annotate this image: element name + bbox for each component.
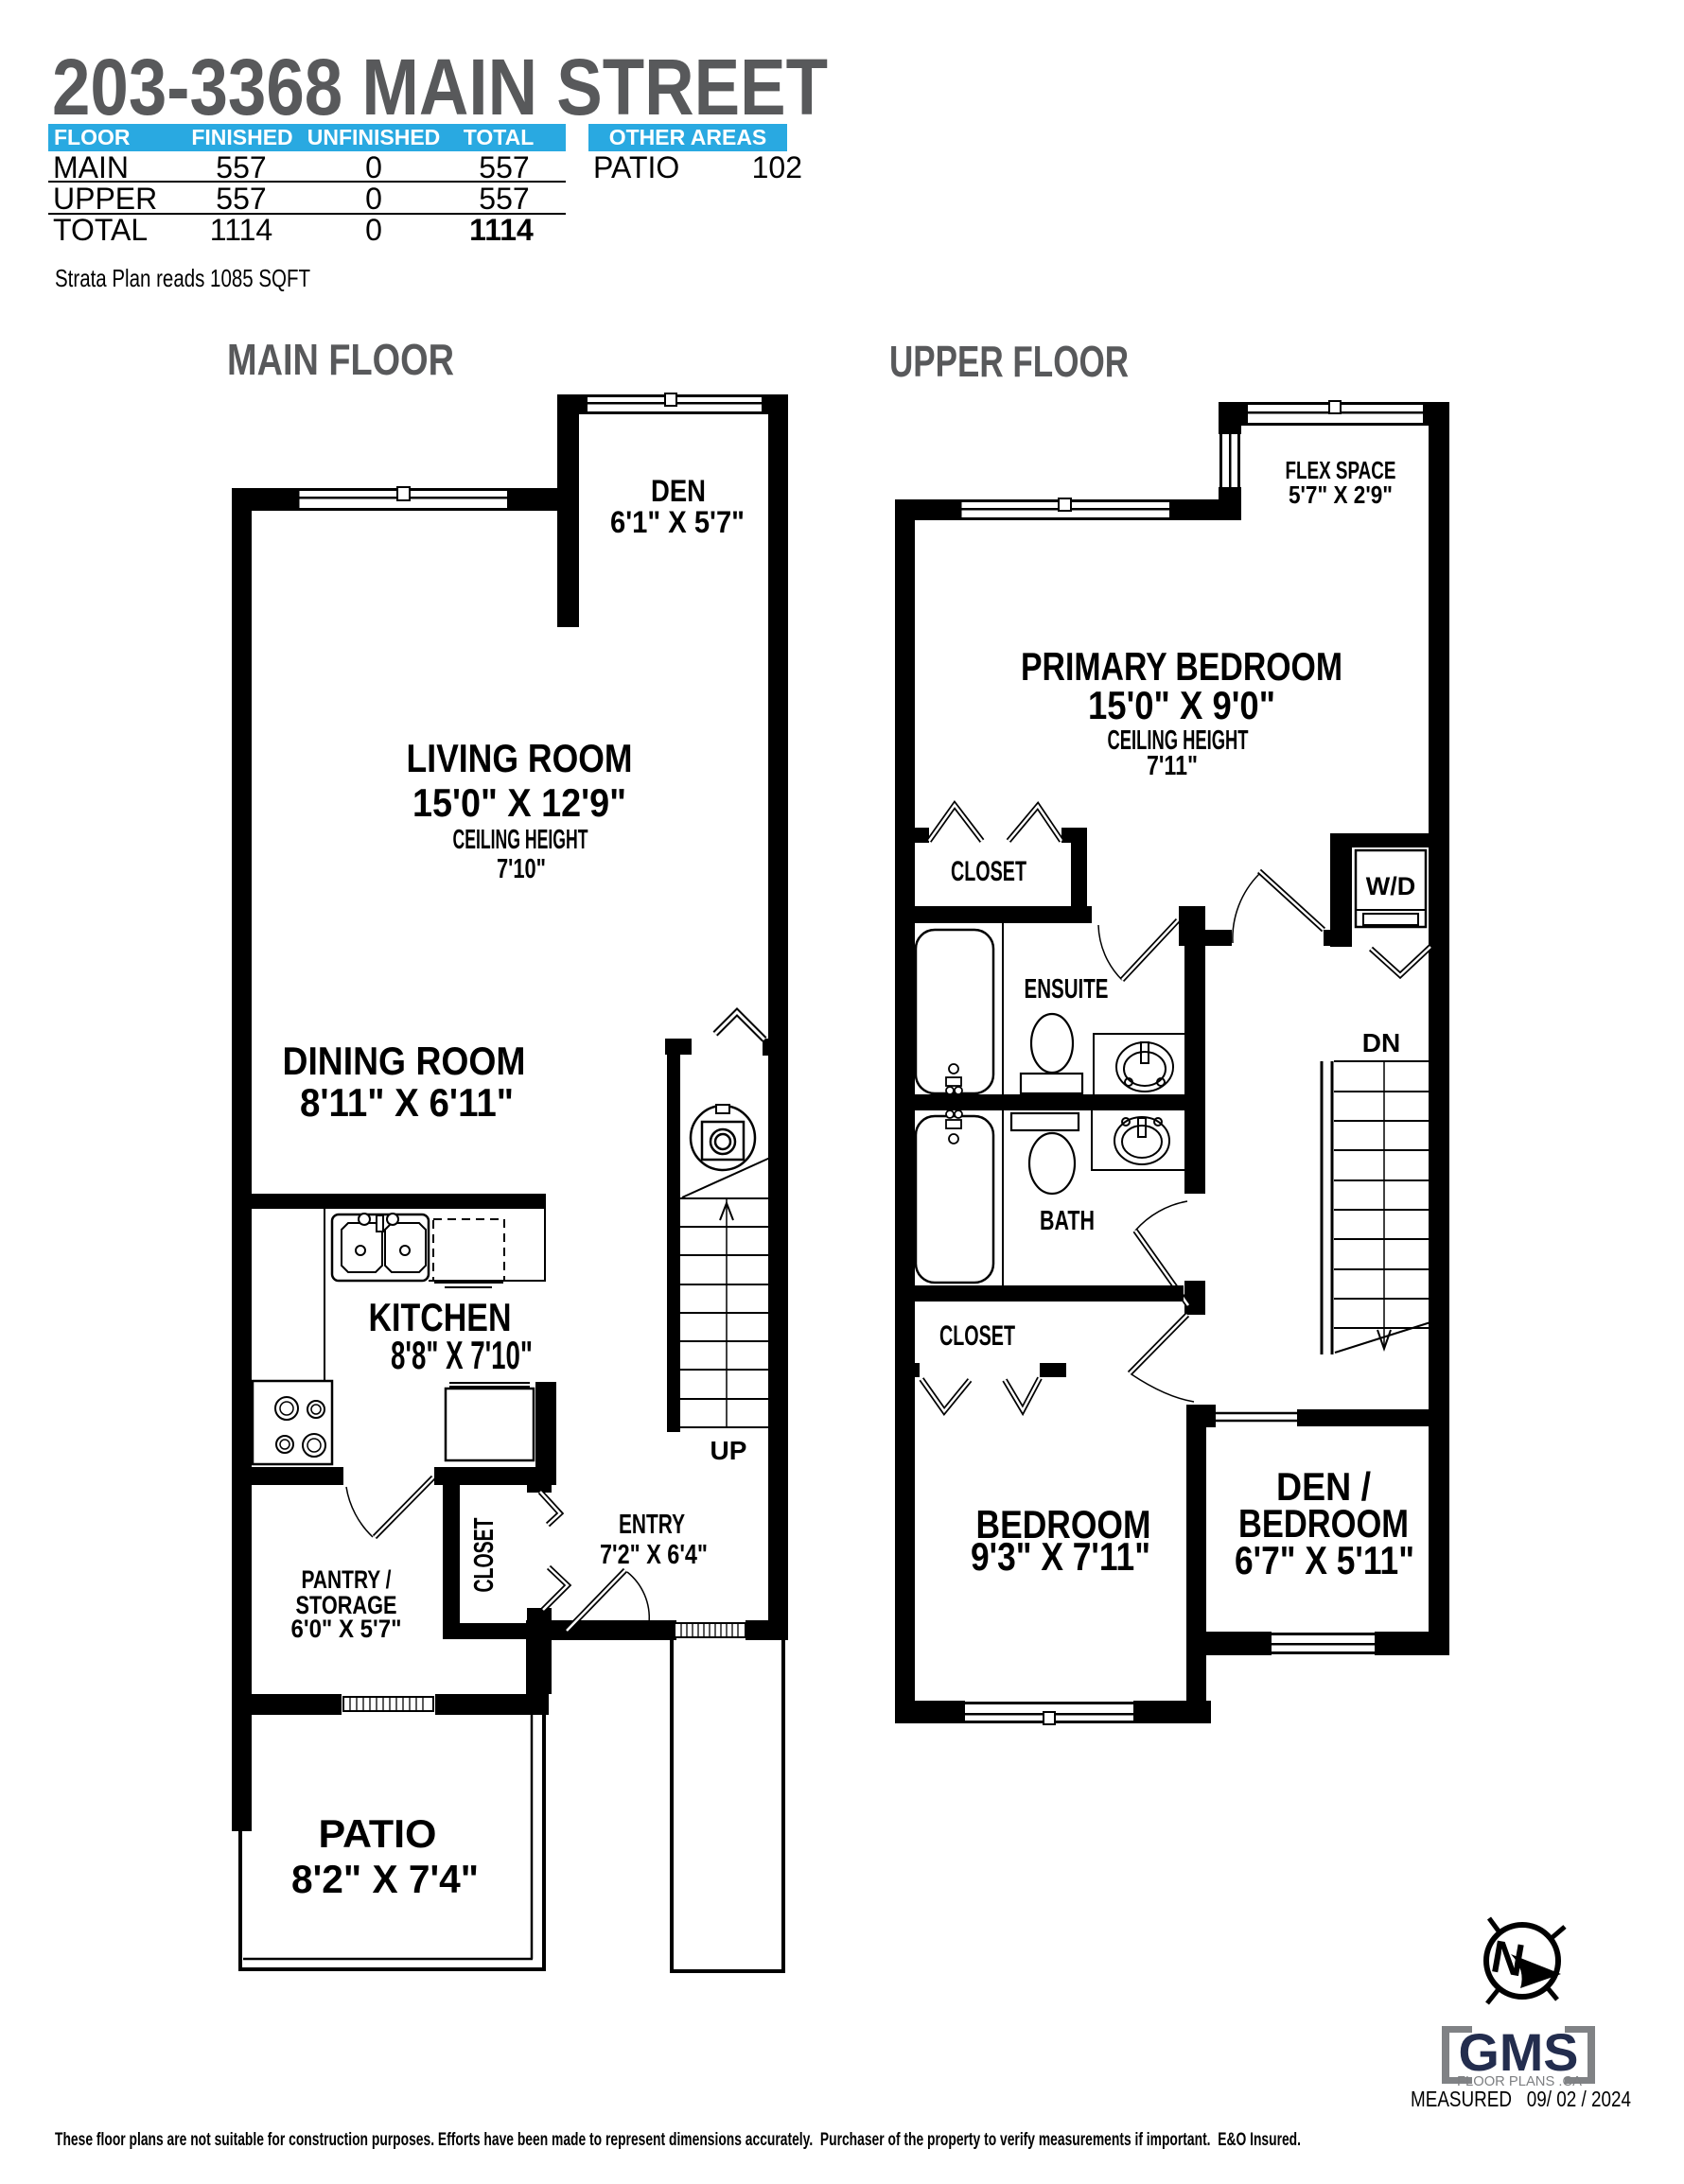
svg-text:1114: 1114: [469, 213, 534, 247]
svg-text:BATH: BATH: [1040, 1206, 1095, 1236]
svg-text:0: 0: [365, 150, 382, 184]
svg-text:6'1" X 5'7": 6'1" X 5'7": [610, 505, 745, 539]
svg-text:LIVING ROOM: LIVING ROOM: [407, 736, 633, 780]
svg-text:DN: DN: [1362, 1028, 1400, 1057]
svg-text:8'8" X 7'10": 8'8" X 7'10": [391, 1333, 533, 1377]
svg-text:UP: UP: [710, 1436, 747, 1465]
svg-text:557: 557: [479, 182, 529, 216]
svg-text:OTHER AREAS: OTHER AREAS: [609, 125, 767, 149]
svg-text:CEILING HEIGHT: CEILING HEIGHT: [453, 825, 588, 855]
svg-text:W/D: W/D: [1366, 872, 1415, 900]
svg-text:FLOOR: FLOOR: [54, 125, 131, 149]
svg-text:PRIMARY BEDROOM: PRIMARY BEDROOM: [1021, 644, 1342, 689]
svg-text:9'3" X 7'11": 9'3" X 7'11": [971, 1534, 1150, 1579]
svg-text:557: 557: [216, 182, 266, 216]
svg-text:7'10": 7'10": [497, 854, 546, 884]
svg-text:PANTRY /: PANTRY /: [302, 1565, 392, 1594]
svg-text:0: 0: [365, 213, 382, 247]
svg-text:7'2" X 6'4": 7'2" X 6'4": [600, 1540, 708, 1570]
svg-text:ENTRY: ENTRY: [619, 1510, 685, 1540]
svg-text:These floor plans are not suit: These floor plans are not suitable for c…: [55, 2130, 1301, 2150]
svg-text:15'0" X 12'9": 15'0" X 12'9": [412, 780, 626, 825]
svg-text:UNFINISHED: UNFINISHED: [307, 125, 441, 149]
svg-text:PATIO: PATIO: [319, 1811, 437, 1856]
svg-text:MAIN FLOOR: MAIN FLOOR: [227, 335, 454, 384]
svg-text:ENSUITE: ENSUITE: [1025, 974, 1109, 1005]
svg-text:PATIO: PATIO: [593, 150, 679, 184]
svg-text:TOTAL: TOTAL: [464, 125, 535, 149]
svg-text:MAIN: MAIN: [53, 150, 129, 184]
svg-text:Strata Plan reads 1085 SQFT: Strata Plan reads 1085 SQFT: [55, 264, 310, 292]
svg-text:15'0" X 9'0": 15'0" X 9'0": [1088, 683, 1275, 727]
svg-text:203-3368 MAIN STREET: 203-3368 MAIN STREET: [52, 43, 828, 131]
svg-text:CLOSET: CLOSET: [951, 856, 1026, 887]
svg-text:557: 557: [216, 150, 266, 184]
svg-text:8'2" X 7'4": 8'2" X 7'4": [291, 1857, 479, 1901]
svg-text:DINING ROOM: DINING ROOM: [283, 1039, 526, 1083]
svg-text:557: 557: [479, 150, 529, 184]
svg-text:1114: 1114: [210, 213, 272, 247]
svg-text:5'7" X 2'9": 5'7" X 2'9": [1289, 480, 1393, 509]
svg-text:CLOSET: CLOSET: [469, 1517, 500, 1592]
svg-text:8'11" X 6'11": 8'11" X 6'11": [300, 1080, 514, 1125]
svg-text:MEASURED 09/ 02 / 2024: MEASURED 09/ 02 / 2024: [1411, 2087, 1631, 2111]
svg-text:0: 0: [365, 182, 382, 216]
svg-text:FINISHED: FINISHED: [191, 125, 292, 149]
svg-text:UPPER FLOOR: UPPER FLOOR: [889, 337, 1129, 386]
svg-text:UPPER: UPPER: [53, 182, 157, 216]
svg-text:CLOSET: CLOSET: [939, 1320, 1015, 1352]
svg-text:102: 102: [752, 150, 802, 184]
svg-text:6'0" X 5'7": 6'0" X 5'7": [291, 1615, 402, 1643]
svg-text:6'7" X 5'11": 6'7" X 5'11": [1235, 1538, 1414, 1582]
svg-text:7'11": 7'11": [1147, 751, 1198, 781]
svg-text:DEN: DEN: [651, 474, 706, 508]
svg-text:TOTAL: TOTAL: [53, 213, 148, 247]
